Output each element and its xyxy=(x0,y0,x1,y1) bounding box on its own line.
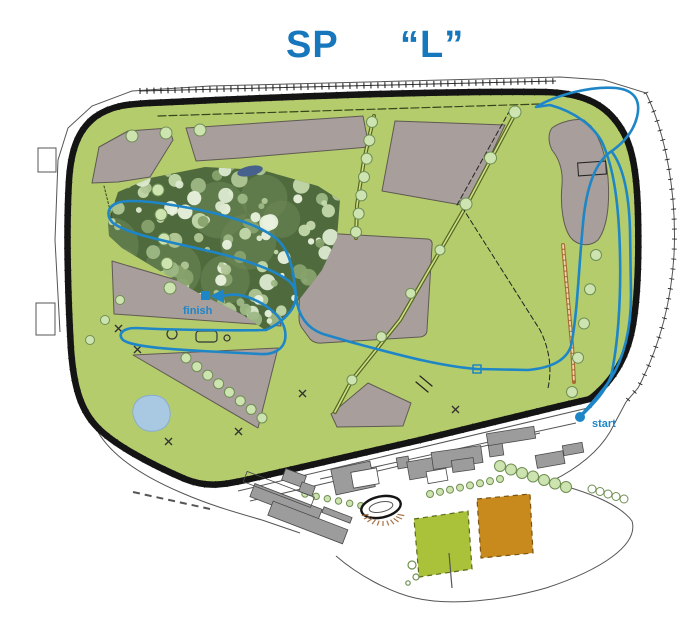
page-title-course: “L” xyxy=(400,24,464,67)
start-marker-icon xyxy=(575,412,585,422)
start-label: start xyxy=(592,418,616,430)
page-title-event: SP xyxy=(286,24,339,67)
course-map-page: SP “L” xyxy=(0,0,700,628)
finish-label: finish xyxy=(183,305,213,317)
orange-field xyxy=(477,494,533,558)
venue-map: finish start xyxy=(0,0,700,628)
green-field xyxy=(414,511,472,577)
pond xyxy=(133,395,171,431)
athletics-oval xyxy=(359,493,404,526)
